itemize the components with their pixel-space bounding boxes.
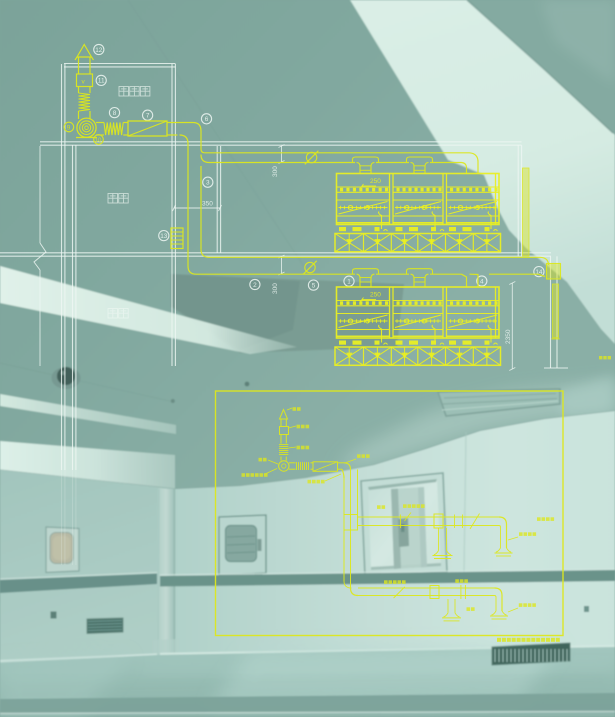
- svg-text:1: 1: [347, 279, 351, 286]
- svg-text:2: 2: [253, 282, 257, 289]
- svg-text:8: 8: [113, 110, 117, 117]
- svg-text:300: 300: [272, 166, 279, 177]
- svg-text:12: 12: [95, 47, 103, 54]
- svg-text:2350: 2350: [505, 329, 512, 344]
- svg-text:9: 9: [67, 125, 71, 132]
- svg-text:250: 250: [370, 178, 381, 185]
- svg-text:3: 3: [206, 180, 210, 187]
- svg-text:11: 11: [98, 78, 105, 85]
- svg-text:7: 7: [146, 113, 150, 120]
- svg-text:13: 13: [160, 233, 168, 240]
- svg-text:250: 250: [370, 292, 381, 299]
- svg-text:6: 6: [205, 116, 209, 123]
- svg-text:10: 10: [95, 137, 102, 144]
- svg-text:5: 5: [312, 282, 316, 289]
- svg-text:4: 4: [480, 278, 484, 285]
- svg-text:300: 300: [272, 283, 279, 294]
- svg-text:350: 350: [202, 201, 213, 208]
